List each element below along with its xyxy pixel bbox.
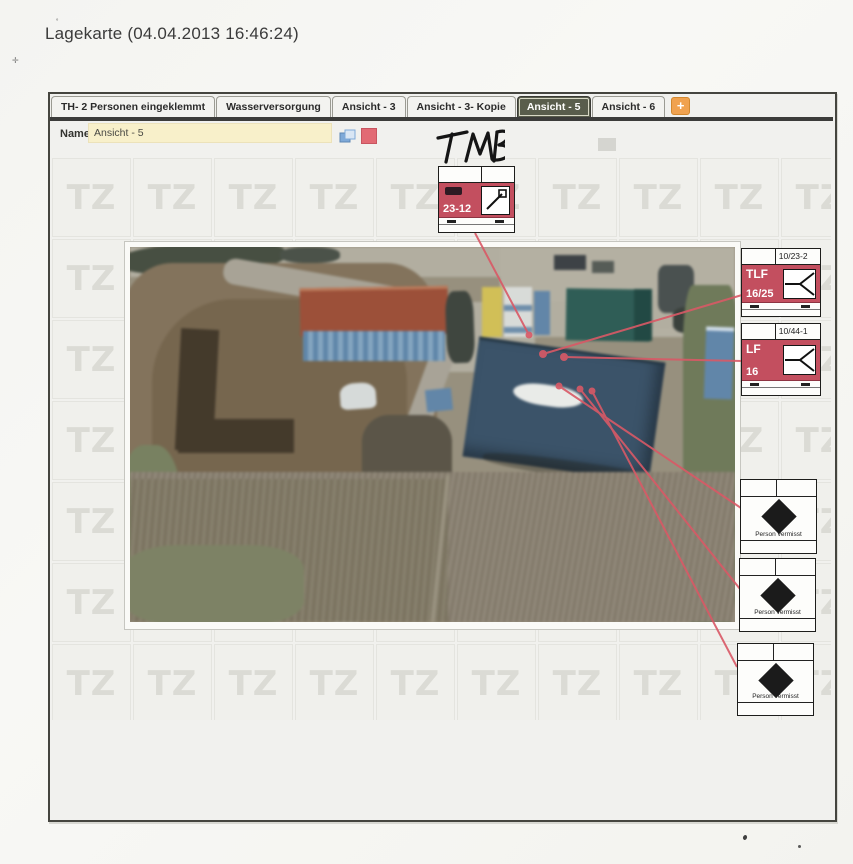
watermark-cell: TZ: [295, 158, 374, 237]
tab-ansicht-6[interactable]: Ansicht - 6: [592, 96, 666, 118]
copy-icon[interactable]: [339, 129, 357, 144]
page-title: Lagekarte (04.04.2013 16:46:24): [45, 24, 299, 44]
missing-person-label: Person vermisst: [738, 693, 813, 700]
aerial-photo[interactable]: [130, 247, 735, 622]
watermark-cell: TZ: [538, 158, 617, 237]
symbol-tlf[interactable]: 10/23-2 TLF 16/25: [741, 248, 821, 317]
unit-id: 23-12: [443, 203, 471, 215]
watermark-cell: TZ: [52, 563, 131, 642]
symbol-person-vermisst-3[interactable]: Person vermisst: [737, 643, 814, 716]
watermark-cell: TZ: [619, 158, 698, 237]
missing-person-label: Person vermisst: [741, 531, 816, 538]
tab-bar: TH- 2 Personen eingeklemmt Wasserversorg…: [51, 94, 831, 118]
watermark-cell: TZ: [457, 644, 536, 720]
tab-underline: [50, 117, 833, 121]
aerial-ladder-icon: [481, 186, 510, 215]
tab-ansicht-3-kopie[interactable]: Ansicht - 3- Kopie: [407, 96, 516, 118]
missing-person-label: Person vermisst: [740, 609, 815, 616]
scan-speck: ˚: [56, 18, 59, 27]
scan-speck: [742, 834, 747, 840]
vehicle-designation: 16: [746, 366, 758, 378]
handwritten-annotation: TMB: [433, 126, 505, 164]
tab-wasserversorgung[interactable]: Wasserversorgung: [216, 96, 331, 118]
scan-artifact: [598, 138, 616, 151]
color-swatch[interactable]: [361, 128, 377, 144]
watermark-cell: TZ: [52, 239, 131, 318]
callsign: 10/23-2: [776, 249, 820, 264]
watermark-cell: TZ: [133, 158, 212, 237]
watermark-cell: TZ: [538, 644, 617, 720]
symbol-person-vermisst-1[interactable]: Person vermisst: [740, 479, 817, 554]
scanned-page: Lagekarte (04.04.2013 16:46:24) ˚ ✛ TH- …: [0, 0, 853, 864]
watermark-cell: TZ: [133, 644, 212, 720]
scan-speck: ✛: [12, 56, 19, 65]
symbol-lf[interactable]: 10/44-1 LF 16: [741, 323, 821, 396]
vehicle-type: TLF: [746, 267, 768, 281]
watermark-cell: TZ: [52, 482, 131, 561]
add-tab-button[interactable]: +: [671, 97, 690, 115]
vehicle-designation: 16/25: [746, 288, 774, 300]
symbol-person-vermisst-2[interactable]: Person vermisst: [739, 558, 816, 632]
tab-th-2-personen-eingeklemmt[interactable]: TH- 2 Personen eingeklemmt: [51, 96, 215, 118]
scan-speck: [798, 845, 801, 848]
watermark-cell: TZ: [376, 644, 455, 720]
vehicle-type: LF: [746, 342, 761, 356]
watermark-cell: TZ: [781, 158, 831, 237]
tank-vehicle-icon: [783, 269, 816, 299]
callsign: 10/44-1: [776, 324, 820, 339]
watermark-cell: TZ: [619, 644, 698, 720]
watermark-cell: TZ: [52, 320, 131, 399]
missing-person-diamond-icon: [761, 499, 796, 534]
tab-ansicht-5[interactable]: Ansicht - 5: [517, 96, 591, 118]
watermark-cell: TZ: [52, 644, 131, 720]
watermark-cell: TZ: [214, 644, 293, 720]
watermark-cell: TZ: [295, 644, 374, 720]
engine-vehicle-icon: [783, 345, 816, 375]
watermark-cell: TZ: [214, 158, 293, 237]
watermark-cell: TZ: [52, 158, 131, 237]
name-input[interactable]: [88, 123, 332, 143]
aerial-photo-art: [130, 247, 735, 622]
watermark-cell: TZ: [700, 158, 779, 237]
symbol-aerial-unit[interactable]: 23-12: [438, 166, 515, 233]
watermark-cell: TZ: [52, 401, 131, 480]
watermark-cell: TZ: [781, 401, 831, 480]
missing-person-diamond-icon: [760, 578, 795, 613]
vehicle-pictogram: [445, 187, 462, 195]
name-field-label: Name: [60, 128, 90, 140]
tab-ansicht-3[interactable]: Ansicht - 3: [332, 96, 406, 118]
